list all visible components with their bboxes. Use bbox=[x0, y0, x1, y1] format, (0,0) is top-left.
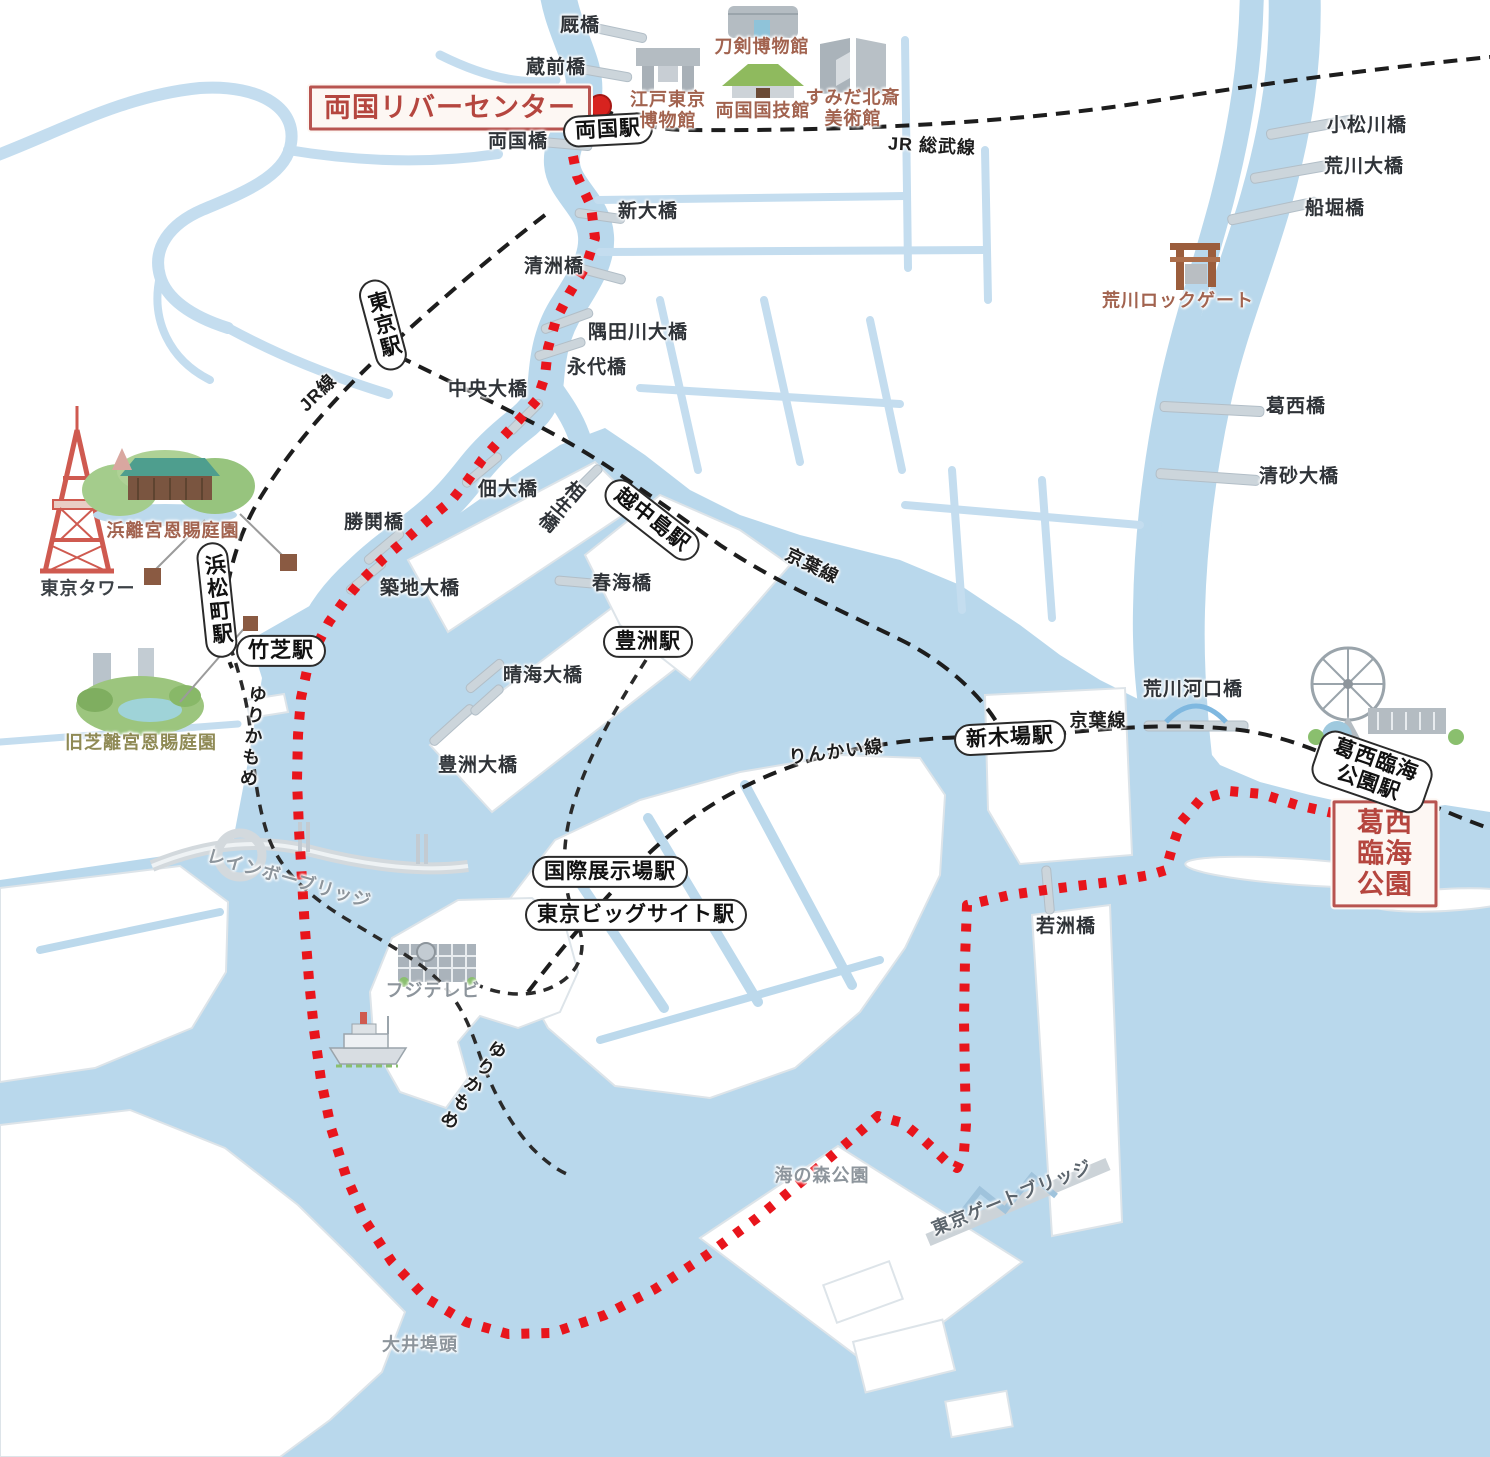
tokyo-station-label: 東京駅 bbox=[355, 276, 410, 374]
jr-sobu-line-label: JR 総武線 bbox=[888, 133, 977, 158]
label-layer: 両国リバーセンター葛西臨海公園両国駅東京駅浜松町駅竹芝駅越中島駅豊洲駅新木場駅国… bbox=[0, 0, 1490, 1457]
arakawa-ohashi-label: 荒川大橋 bbox=[1324, 156, 1404, 178]
etchujima-station-label: 越中島駅 bbox=[598, 473, 706, 567]
kasaibashi-label: 葛西橋 bbox=[1266, 396, 1326, 418]
yurikamome-south-label: ゆりかもめ bbox=[434, 1036, 510, 1135]
tokyo-big-sight-station-label: 東京ビッグサイト駅 bbox=[525, 899, 747, 931]
tokyo-tower-label: 東京タワー bbox=[41, 579, 136, 600]
toyosu-station-label: 豊洲駅 bbox=[603, 626, 693, 658]
eitaibashi-label: 永代橋 bbox=[567, 357, 627, 379]
kokusai-tenjijo-station-label: 国際展示場駅 bbox=[532, 856, 688, 888]
token-museum-label: 刀剣博物館 bbox=[715, 37, 810, 58]
yurikamome-north-label: ゆりかもめ bbox=[236, 684, 268, 791]
hamarikyu-gardens-label: 浜離宮恩賜庭園 bbox=[107, 521, 240, 542]
ryogokubashi-label: 両国橋 bbox=[488, 131, 548, 153]
kiyosubashi-label: 清洲橋 bbox=[524, 256, 584, 278]
arakawa-lock-gate-label: 荒川ロックゲート bbox=[1102, 291, 1254, 312]
tokyo-gate-bridge-label: 東京ゲートブリッジ bbox=[929, 1156, 1095, 1239]
oi-wharf-label: 大井埠頭 bbox=[382, 1335, 458, 1356]
keiyo-line-west-label: 京葉線 bbox=[782, 544, 842, 588]
tokyo-bay-cruise-route-map: 両国リバーセンター葛西臨海公園両国駅東京駅浜松町駅竹芝駅越中島駅豊洲駅新木場駅国… bbox=[0, 0, 1490, 1457]
harumibashi-label: 春海橋 bbox=[592, 573, 652, 595]
tsukiji-ohashi-label: 築地大橋 bbox=[380, 578, 460, 600]
umi-no-mori-park-label: 海の森公園 bbox=[775, 1166, 870, 1187]
chuo-ohashi-label: 中央大橋 bbox=[448, 379, 528, 401]
umayabashi-label: 厩橋 bbox=[560, 15, 600, 37]
komatsugawabashi-label: 小松川橋 bbox=[1327, 115, 1407, 137]
shin-ohashi-label: 新大橋 bbox=[618, 201, 678, 223]
takeshiba-station-label: 竹芝駅 bbox=[236, 635, 326, 667]
sumidagawa-ohashi-label: 隅田川大橋 bbox=[588, 322, 688, 344]
ryogoku-river-center-label: 両国リバーセンター bbox=[309, 85, 591, 130]
fuji-tv-label: フジテレビ bbox=[386, 981, 481, 1002]
toyosu-ohashi-label: 豊洲大橋 bbox=[438, 755, 518, 777]
rinkai-line-label: りんかい線 bbox=[788, 736, 885, 768]
hamamatsucho-station-label: 浜松町駅 bbox=[195, 541, 239, 660]
kuramaebashi-label: 蔵前橋 bbox=[526, 57, 586, 79]
tsukuda-ohashi-label: 佃大橋 bbox=[478, 479, 538, 501]
edo-tokyo-museum-label: 江戸東京 博物館 bbox=[630, 89, 706, 130]
kyu-shiba-rikyu-gardens-label: 旧芝離宮恩賜庭園 bbox=[65, 733, 217, 754]
funaboribashi-label: 船堀橋 bbox=[1305, 198, 1365, 220]
kiyosuna-ohashi-label: 清砂大橋 bbox=[1259, 466, 1339, 488]
arakawa-kakokyo-label: 荒川河口橋 bbox=[1143, 679, 1243, 701]
sumida-hokusai-museum-label: すみだ北斎 美術館 bbox=[806, 87, 901, 128]
wakasubashi-label: 若洲橋 bbox=[1036, 916, 1096, 938]
keiyo-line-east-label: 京葉線 bbox=[1070, 711, 1127, 732]
harumi-ohashi-label: 晴海大橋 bbox=[503, 665, 583, 687]
kachidokibashi-label: 勝鬨橋 bbox=[344, 512, 404, 534]
ryogoku-kokugikan-label: 両国国技館 bbox=[716, 101, 811, 122]
jr-line-label: JR線 bbox=[295, 370, 341, 416]
rainbow-bridge-label: レインボーブリッジ bbox=[204, 846, 373, 913]
kasai-rinkai-park-label: 葛西臨海公園 bbox=[1333, 800, 1438, 907]
shinkiba-station-label: 新木場駅 bbox=[953, 719, 1067, 757]
aioibashi-label: 相生橋 bbox=[532, 475, 587, 535]
